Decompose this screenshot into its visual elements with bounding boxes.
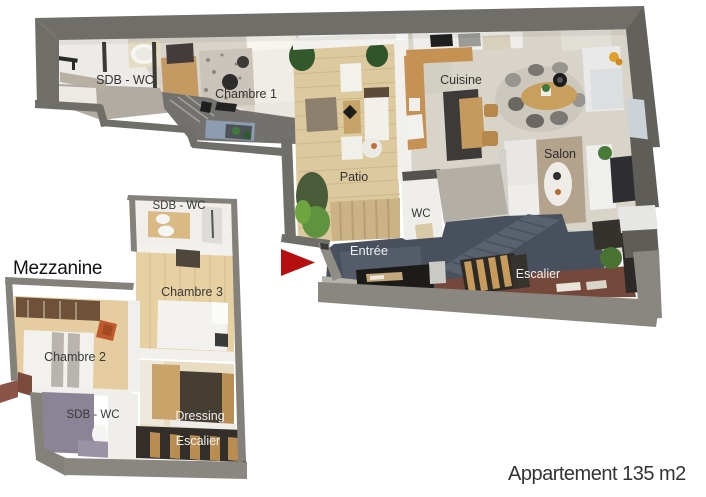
svg-text:WC: WC [411,208,430,220]
svg-text:Entrée: Entrée [350,243,388,258]
svg-text:Chambre 2: Chambre 2 [44,350,106,364]
svg-text:Chambre 1: Chambre 1 [215,87,277,101]
svg-text:Dressing: Dressing [175,409,224,423]
svg-text:Escalier: Escalier [516,267,560,281]
svg-text:SDB - WC: SDB - WC [66,409,119,421]
svg-text:SDB - WC: SDB - WC [152,200,205,212]
svg-text:Patio: Patio [340,170,369,184]
svg-text:Appartement 135 m2: Appartement 135 m2 [508,463,686,485]
svg-text:SDB - WC: SDB - WC [96,73,154,87]
svg-text:Chambre 3: Chambre 3 [161,285,223,299]
svg-text:Salon: Salon [544,147,576,161]
svg-text:Escalier: Escalier [176,434,220,448]
svg-text:Mezzanine: Mezzanine [13,258,102,279]
svg-text:Cuisine: Cuisine [440,73,482,87]
